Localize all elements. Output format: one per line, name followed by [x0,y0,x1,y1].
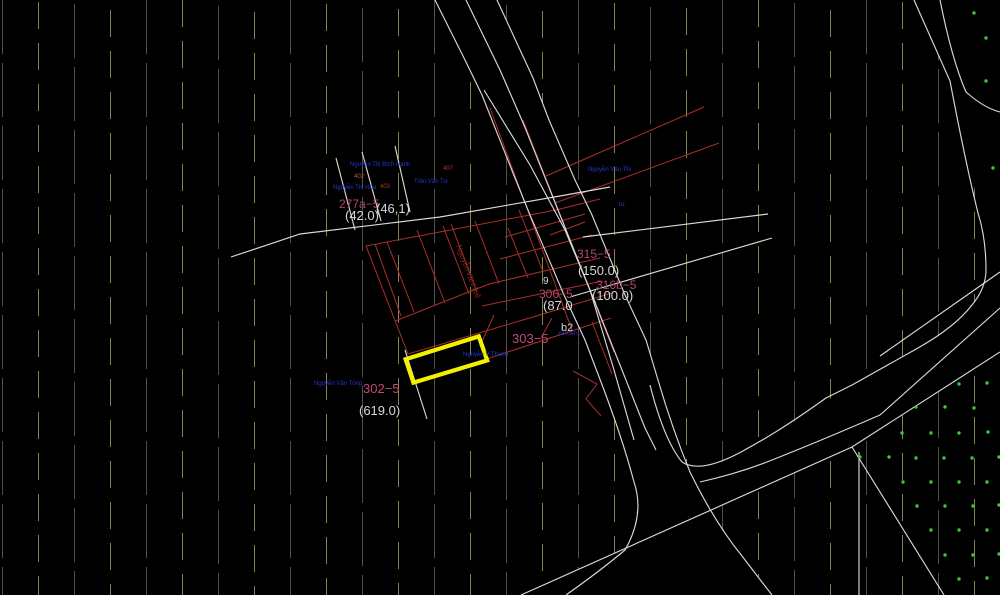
svg-text:Nguyễn Thị Hoa: Nguyễn Thị Hoa [333,184,377,191]
svg-text:Nguyễn V Thanh: Nguyễn V Thanh [463,351,508,358]
svg-text:315−5: 315−5 [577,247,611,261]
svg-text:Nguyễn Văn Tòng: Nguyễn Văn Tòng [314,380,362,387]
svg-text:Trần Văn Tư: Trần Văn Tư [414,179,448,185]
svg-text:Nguyễn Văn Thi: Nguyễn Văn Thi [588,166,631,173]
svg-text:402: 402 [354,174,365,180]
svg-text:(100.0): (100.0) [592,288,633,303]
svg-text:(87.0: (87.0 [543,298,573,313]
svg-text:403: 403 [380,184,391,190]
svg-text:302−5: 302−5 [363,381,400,396]
svg-text:(619.0): (619.0) [359,403,400,418]
svg-text:407: 407 [443,166,454,172]
svg-text:(150.0): (150.0) [578,263,619,278]
svg-text:tư: tư [619,202,625,208]
svg-text:Nguyễn Thị Bích Hạnh: Nguyễn Thị Bích Hạnh [350,161,410,168]
svg-text:303−5: 303−5 [512,331,549,346]
svg-text:xã Liên..: xã Liên.. [558,331,581,337]
svg-text:(42.0): (42.0) [345,208,379,223]
svg-text:(46,1): (46,1) [376,201,410,216]
svg-text:9: 9 [543,276,549,287]
